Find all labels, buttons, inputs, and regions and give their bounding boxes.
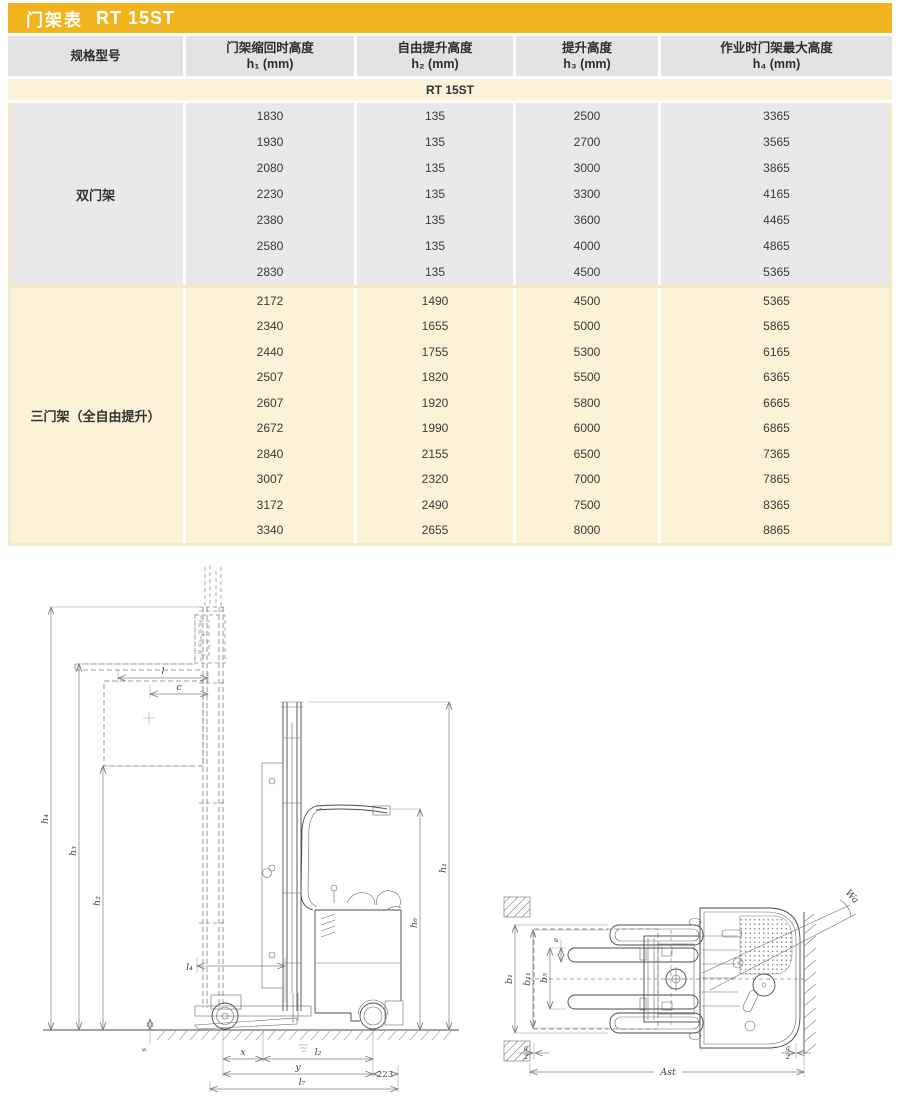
dimension-h2: h₂ <box>92 766 195 1030</box>
dim-label-l7: l₇ <box>299 1077 306 1088</box>
spec-value-cell: 6365 <box>661 365 892 391</box>
spec-value-cell: 5365 <box>661 259 892 285</box>
spec-value-cell: 3865 <box>661 155 892 181</box>
spec-value-cell: 7500 <box>516 492 658 518</box>
dimension-l: l <box>118 666 208 683</box>
spec-value-cell: 1820 <box>357 365 513 391</box>
table-border-bottom <box>8 543 892 546</box>
dim-label-x: x <box>240 1047 246 1058</box>
header-line: 提升高度 <box>562 40 612 56</box>
spec-value-cell: 1490 <box>357 288 513 314</box>
spec-value-cell: 1655 <box>357 314 513 340</box>
dim-label-b11: b₁₁ <box>522 972 533 986</box>
spec-value-cell: 3600 <box>516 207 658 233</box>
spec-value-cell: 3000 <box>516 155 658 181</box>
spec-value-cell: 135 <box>357 233 513 259</box>
section-rows: 2172149045005365234016555000586524401755… <box>186 288 892 543</box>
spec-value-cell: 4165 <box>661 181 892 207</box>
section-rows: 1830135250033651930135270035652080135300… <box>186 103 892 285</box>
mast-raised-ghost <box>75 565 227 1008</box>
spec-value-cell: 2500 <box>516 103 658 129</box>
spec-value-cell: 2380 <box>186 207 354 233</box>
spec-value-cell: 3300 <box>516 181 658 207</box>
spec-value-cell: 2840 <box>186 441 354 467</box>
dimension-l4: l₄ <box>186 958 285 1003</box>
spec-value-cell: 2080 <box>186 155 354 181</box>
spec-value-cell: 2672 <box>186 416 354 442</box>
spec-value-cell: 5365 <box>661 288 892 314</box>
title-bar: 门架表 RT 15ST <box>8 3 892 33</box>
dim-label-s: s <box>140 1048 148 1052</box>
spec-value-cell: 2172 <box>186 288 354 314</box>
dim-label-l: l <box>161 666 164 677</box>
spec-value-cell: 2655 <box>357 518 513 544</box>
spec-value-cell: 5300 <box>516 339 658 365</box>
spec-value-cell: 7000 <box>516 467 658 493</box>
header-formula: h₄ (mm) <box>753 56 801 72</box>
spec-value-cell: 6500 <box>516 441 658 467</box>
dim-label-h1: h₁ <box>438 863 449 873</box>
spec-value-cell: 5800 <box>516 390 658 416</box>
dim-label-wa: Wa <box>843 888 861 906</box>
dim-label-a2-num: a <box>524 1044 528 1052</box>
section-label: 双门架 <box>8 103 183 285</box>
header-formula: h₃ (mm) <box>563 56 610 72</box>
model-row: RT 15ST <box>8 79 892 100</box>
top-view-drawing: Wa b₁ b₁₁ b₅ e a 2 <box>488 878 888 1090</box>
dim-label-h2: h₂ <box>92 896 103 906</box>
dim-label-a2-den: 2 <box>785 1053 791 1061</box>
header-formula: h₁ (mm) <box>247 56 294 72</box>
mast-spec-table: 规格型号 门架缩回时高度 h₁ (mm) 自由提升高度 h₂ (mm) 提升高度… <box>8 36 892 546</box>
dim-label-b1: b₁ <box>504 974 515 984</box>
spec-value-cell: 3172 <box>186 492 354 518</box>
spec-value-cell: 8000 <box>516 518 658 544</box>
header-h3: 提升高度 h₃ (mm) <box>516 36 658 76</box>
spec-value-cell: 4500 <box>516 259 658 285</box>
dimension-h6: h₆ <box>390 809 420 1030</box>
dim-label-l4: l₄ <box>186 962 193 973</box>
table-border-right <box>889 103 892 546</box>
spec-value-cell: 2230 <box>186 181 354 207</box>
table-border-left <box>8 103 11 546</box>
table-header-row: 规格型号 门架缩回时高度 h₁ (mm) 自由提升高度 h₂ (mm) 提升高度… <box>8 36 892 76</box>
dim-label-b5: b₅ <box>539 973 550 983</box>
section-triplex-mast: 三门架（全自由提升） 21721490450053652340165550005… <box>8 288 892 543</box>
ground-line <box>43 1030 459 1051</box>
model-code: RT 15ST <box>96 8 175 29</box>
page-title: 门架表 <box>26 6 83 31</box>
spec-value-cell: 2830 <box>186 259 354 285</box>
dim-label-ast: Ast <box>659 1067 676 1078</box>
forks-and-outrigger <box>195 993 386 1029</box>
spec-value-cell: 6000 <box>516 416 658 442</box>
spec-value-cell: 135 <box>357 129 513 155</box>
header-formula: h₂ (mm) <box>411 56 458 72</box>
dimension-c: c <box>143 682 208 724</box>
dim-label-h4: h₄ <box>40 814 51 824</box>
dim-label-l2: l₂ <box>315 1047 322 1058</box>
dim-label-223: 223 <box>377 1070 393 1080</box>
spec-value-cell: 2155 <box>357 441 513 467</box>
spec-value-cell: 4000 <box>516 233 658 259</box>
bottom-dimensions: x l₂ y 223 l₇ <box>210 1031 398 1092</box>
spec-value-cell: 1930 <box>186 129 354 155</box>
spec-value-cell: 6165 <box>661 339 892 365</box>
spec-value-cell: 4465 <box>661 207 892 233</box>
dim-label-h3: h₃ <box>68 846 79 856</box>
operator-platform <box>740 916 792 974</box>
side-view-drawing: h₄ h₃ h₂ h₁ h₆ l <box>35 563 475 1113</box>
dimension-h4: h₄ <box>40 607 199 1030</box>
dimension-e: e <box>552 938 561 962</box>
header-h1: 门架缩回时高度 h₁ (mm) <box>186 36 354 76</box>
spec-value-cell: 135 <box>357 103 513 129</box>
spec-value-cell: 1755 <box>357 339 513 365</box>
spec-value-cell: 135 <box>357 259 513 285</box>
header-line: 作业时门架最大高度 <box>720 40 833 56</box>
dim-label-e: e <box>552 938 560 942</box>
overhead-guard <box>301 805 390 910</box>
header-h2: 自由提升高度 h₂ (mm) <box>357 36 513 76</box>
dimension-ast: Ast <box>530 1056 804 1078</box>
spec-value-cell: 3565 <box>661 129 892 155</box>
header-line: 门架缩回时高度 <box>226 40 314 56</box>
dimension-h1: h₁ <box>308 702 449 1030</box>
dim-label-y: y <box>294 1062 301 1073</box>
truck-body-top <box>689 908 800 1048</box>
spec-value-cell: 2340 <box>186 314 354 340</box>
spec-value-cell: 4865 <box>661 233 892 259</box>
header-line: 自由提升高度 <box>397 40 472 56</box>
table-body: 双门架 183013525003365193013527003565208013… <box>8 103 892 546</box>
spec-value-cell: 2607 <box>186 390 354 416</box>
spec-value-cell: 135 <box>357 181 513 207</box>
header-spec-model: 规格型号 <box>8 36 183 76</box>
steering-wheel <box>753 974 775 996</box>
dimension-h3: h₃ <box>68 664 195 1030</box>
section-duplex-mast: 双门架 183013525003365193013527003565208013… <box>8 103 892 285</box>
spec-value-cell: 2580 <box>186 233 354 259</box>
spec-value-cell: 5000 <box>516 314 658 340</box>
dimension-a2-left: a 2 <box>519 1043 549 1061</box>
dim-label-c: c <box>176 682 182 693</box>
spec-value-cell: 1920 <box>357 390 513 416</box>
spec-value-cell: 3007 <box>186 467 354 493</box>
spec-value-cell: 2507 <box>186 365 354 391</box>
spec-value-cell: 6865 <box>661 416 892 442</box>
dim-label-a2-num: a <box>786 1044 790 1052</box>
spec-value-cell: 135 <box>357 207 513 233</box>
dimension-s: s <box>140 1019 150 1052</box>
spec-value-cell: 2700 <box>516 129 658 155</box>
dim-label-a2-den: 2 <box>523 1053 529 1061</box>
header-line: 规格型号 <box>70 48 120 64</box>
mast-lowered <box>262 702 303 1011</box>
spec-value-cell: 6665 <box>661 390 892 416</box>
header-h4: 作业时门架最大高度 h₄ (mm) <box>661 36 892 76</box>
spec-value-cell: 5865 <box>661 314 892 340</box>
spec-value-cell: 7865 <box>661 467 892 493</box>
spec-value-cell: 2490 <box>357 492 513 518</box>
spec-value-cell: 2440 <box>186 339 354 365</box>
spec-value-cell: 8865 <box>661 518 892 544</box>
spec-value-cell: 135 <box>357 155 513 181</box>
spec-value-cell: 3365 <box>661 103 892 129</box>
spec-value-cell: 2320 <box>357 467 513 493</box>
spec-value-cell: 8365 <box>661 492 892 518</box>
spec-value-cell: 1990 <box>357 416 513 442</box>
truck-body <box>315 885 403 1025</box>
spec-value-cell: 5500 <box>516 365 658 391</box>
spec-value-cell: 4500 <box>516 288 658 314</box>
spec-value-cell: 1830 <box>186 103 354 129</box>
spec-value-cell: 7365 <box>661 441 892 467</box>
dim-label-h6: h₆ <box>409 918 420 928</box>
spec-value-cell: 3340 <box>186 518 354 544</box>
dimension-b5: b₅ <box>539 948 566 1009</box>
section-label: 三门架（全自由提升） <box>8 288 183 543</box>
